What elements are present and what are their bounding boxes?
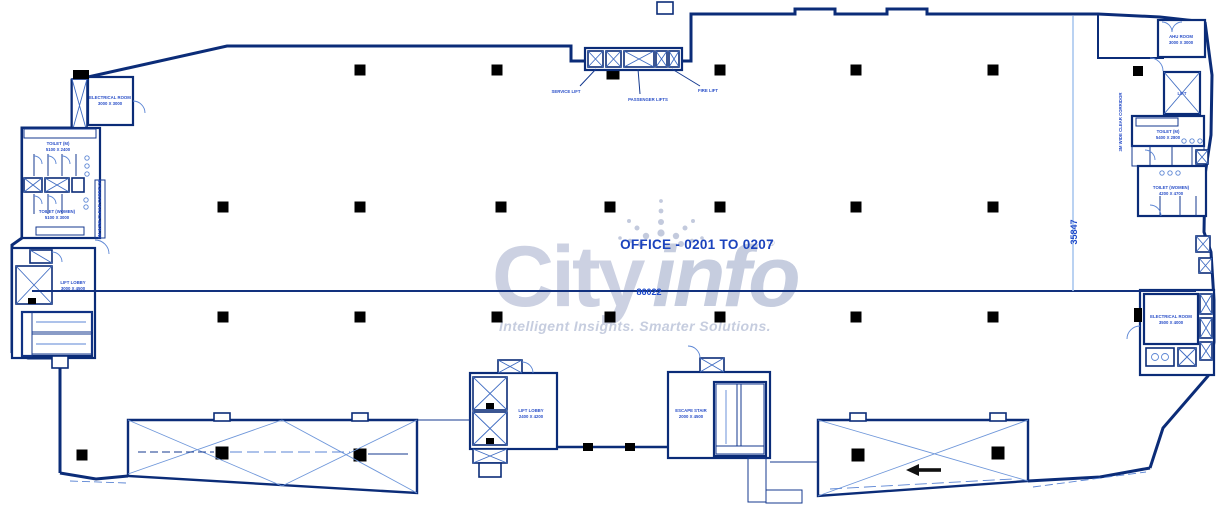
passenger-lift-label: PASSENGER LIFTS xyxy=(628,97,668,102)
right-service-core: AHU ROOM 3000 X 3000 LIFT 3M WIDE CLEAR … xyxy=(1098,14,1212,273)
right-electrical-name: ELECTRICAL ROOM xyxy=(1150,314,1192,319)
service-lift-label: SERVICE LIFT xyxy=(551,89,580,94)
right-toilet-w-name: TOILET (WOMEN) xyxy=(1153,185,1190,190)
right-lift-label: LIFT xyxy=(1177,91,1186,96)
left-toilet-m-name: TOILET (M) xyxy=(47,141,70,146)
right-electrical-core: ELECTRICAL ROOM 3500 X 4000 xyxy=(1127,290,1214,375)
office-label-group: OFFICE - 0201 TO 0207 xyxy=(620,237,774,252)
vertical-dimension: 35847 xyxy=(1069,219,1079,244)
roof-tab xyxy=(657,2,673,14)
right-toilet-m-size: 5400 X 2800 xyxy=(1156,135,1181,140)
floor-plan-page: City info ® Intelligent Insights. Smarte… xyxy=(0,0,1230,531)
right-electrical-room xyxy=(1144,294,1198,344)
office-unit-label: OFFICE - 0201 TO 0207 xyxy=(620,237,774,252)
left-lift-lobby-name: LIFT LOBBY xyxy=(60,280,85,285)
left-service-core: ELECTRICAL ROOM 3000 X 3000 TOILET (M) 5… xyxy=(22,70,145,254)
fire-lift-label: FIRE LIFT xyxy=(698,88,718,93)
right-toilet-w-size: 4200 X 4700 xyxy=(1159,191,1184,196)
left-electrical-size: 3000 X 3000 xyxy=(98,101,123,106)
right-ahu-name: AHU ROOM xyxy=(1169,34,1193,39)
left-lift-stair-core: LIFT LOBBY 3000 X 4500 xyxy=(12,248,95,368)
bottom-lift-lobby-size: 2400 X 4200 xyxy=(519,414,544,419)
direction-arrow xyxy=(906,464,941,476)
watermark: City info ® Intelligent Insights. Smarte… xyxy=(492,199,798,334)
bottom-right-envelope-wall xyxy=(1028,468,1150,481)
escape-passage xyxy=(748,458,766,502)
bottom-connecting-wall xyxy=(557,443,668,451)
grade-line-left xyxy=(70,481,126,483)
left-corridor-label: 3M WIDE CLEAR CORRIDOR xyxy=(97,179,102,239)
watermark-tagline: Intelligent Insights. Smarter Solutions. xyxy=(499,318,771,334)
escape-stair-size: 2000 X 4500 xyxy=(679,414,704,419)
right-electrical-size: 3500 X 4000 xyxy=(1159,320,1184,325)
horizontal-dimension: 86022 xyxy=(636,287,661,297)
top-lift-bank: SERVICE LIFT PASSENGER LIFTS FIRE LIFT xyxy=(551,48,718,102)
floor-plan-drawing: City info ® Intelligent Insights. Smarte… xyxy=(0,0,1230,531)
bottom-staircase xyxy=(714,382,766,456)
escape-stair-name: ESCAPE STAIR xyxy=(675,408,707,413)
left-electrical-name: ELECTRICAL ROOM xyxy=(89,95,131,100)
bottom-lift-core: LIFT LOBBY 2400 X 4200 xyxy=(417,360,557,477)
bottom-lift-lobby-name: LIFT LOBBY xyxy=(518,408,543,413)
left-toilet-w-name: TOILET (WOMEN) xyxy=(39,209,76,214)
bottom-left-envelope-wall xyxy=(60,473,128,479)
right-corridor-label: 3M WIDE CLEAR CORRIDOR xyxy=(1118,92,1123,152)
right-ahu-size: 3000 X 3000 xyxy=(1169,40,1194,45)
left-staircase xyxy=(22,312,92,356)
left-toilet-w-size: 5100 X 3000 xyxy=(45,215,70,220)
right-toilet-m-name: TOILET (M) xyxy=(1157,129,1180,134)
left-toilet-m-size: 5100 X 2400 xyxy=(46,147,71,152)
bottom-stair-core: ESCAPE STAIR 2000 X 4500 xyxy=(668,346,818,503)
terrace-left xyxy=(128,413,417,493)
